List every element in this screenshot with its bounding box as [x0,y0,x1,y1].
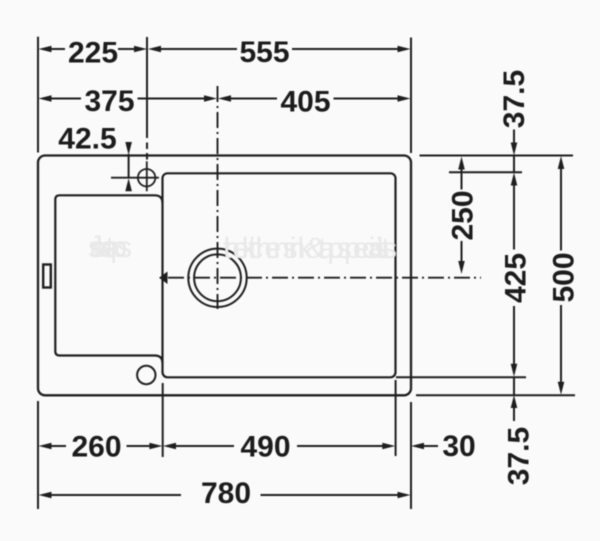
svg-text:500: 500 [547,252,580,302]
svg-text:42.5: 42.5 [58,122,116,155]
svg-text:250: 250 [446,190,479,240]
svg-text:555: 555 [239,36,289,69]
svg-text:sinks-taps: sinks-taps [88,231,132,264]
svg-text:405: 405 [280,86,330,119]
svg-text:780: 780 [201,477,251,510]
svg-text:490: 490 [240,431,290,464]
svg-text:375: 375 [84,85,134,118]
svg-text:37.5: 37.5 [498,70,531,128]
svg-text:the kitchen sink & tap special: the kitchen sink & tap specialists [223,232,397,265]
svg-text:225: 225 [68,37,118,70]
svg-text:425: 425 [499,253,532,303]
svg-text:30: 30 [442,430,475,463]
svg-text:37.5: 37.5 [502,427,535,485]
svg-text:260: 260 [71,431,121,464]
